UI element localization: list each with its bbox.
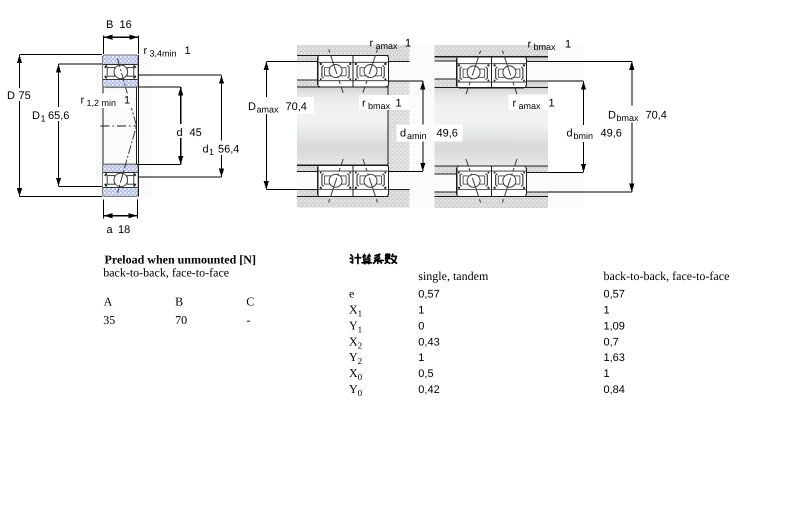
svg-text:70,4: 70,4 xyxy=(286,101,307,113)
svg-text:X0: X0 xyxy=(349,366,363,382)
svg-text:65,6: 65,6 xyxy=(48,110,69,122)
svg-text:D: D xyxy=(7,90,15,102)
svg-text:Preload when unmounted [N]: Preload when unmounted [N] xyxy=(105,253,256,267)
svg-text:18: 18 xyxy=(118,224,130,236)
svg-text:B: B xyxy=(175,295,183,309)
svg-text:1: 1 xyxy=(565,39,571,51)
svg-text:D: D xyxy=(608,110,616,122)
svg-text:a: a xyxy=(107,224,114,236)
svg-text:r: r xyxy=(144,45,148,57)
svg-text:r: r xyxy=(81,95,85,107)
svg-text:A: A xyxy=(104,295,113,309)
svg-text:3,4min: 3,4min xyxy=(150,49,177,59)
svg-text:1: 1 xyxy=(209,147,214,157)
svg-text:bmin: bmin xyxy=(574,131,594,141)
svg-text:70,4: 70,4 xyxy=(646,110,667,122)
svg-text:amax: amax xyxy=(376,41,399,51)
svg-text:1,09: 1,09 xyxy=(604,320,625,332)
svg-text:1: 1 xyxy=(185,45,191,57)
svg-text:e: e xyxy=(349,287,354,301)
svg-text:Y1: Y1 xyxy=(349,318,362,334)
svg-text:amax: amax xyxy=(257,105,280,115)
svg-text:back-to-back, face-to-face: back-to-back, face-to-face xyxy=(604,269,730,283)
svg-text:1: 1 xyxy=(418,352,424,364)
svg-text:d: d xyxy=(203,144,209,156)
svg-text:56,4: 56,4 xyxy=(218,144,239,156)
svg-text:1: 1 xyxy=(405,38,411,50)
svg-text:0,42: 0,42 xyxy=(418,384,439,396)
svg-text:d: d xyxy=(177,127,183,139)
svg-text:0,5: 0,5 xyxy=(418,368,433,380)
svg-text:0,84: 0,84 xyxy=(604,384,625,396)
svg-text:d: d xyxy=(567,128,573,140)
svg-text:0: 0 xyxy=(418,320,424,332)
svg-text:amax: amax xyxy=(519,101,542,111)
svg-text:1: 1 xyxy=(396,98,402,110)
svg-text:bmax: bmax xyxy=(534,42,557,52)
svg-text:49,6: 49,6 xyxy=(437,128,458,140)
svg-text:bmax: bmax xyxy=(368,101,391,111)
svg-text:X1: X1 xyxy=(349,303,362,319)
svg-text:d: d xyxy=(400,128,406,140)
svg-text:-: - xyxy=(247,313,251,327)
svg-text:49,6: 49,6 xyxy=(601,128,622,140)
svg-text:D: D xyxy=(248,101,256,113)
svg-text:Y0: Y0 xyxy=(349,382,363,398)
svg-text:1: 1 xyxy=(604,368,610,380)
svg-text:0,57: 0,57 xyxy=(418,289,439,301)
svg-text:back-to-back, face-to-face: back-to-back, face-to-face xyxy=(103,266,229,280)
svg-text:single, tandem: single, tandem xyxy=(418,269,489,283)
svg-text:0,7: 0,7 xyxy=(604,336,619,348)
svg-text:1,63: 1,63 xyxy=(604,352,625,364)
svg-text:35: 35 xyxy=(103,313,115,327)
svg-text:45: 45 xyxy=(190,127,202,139)
svg-text:75: 75 xyxy=(19,90,31,102)
svg-text:1: 1 xyxy=(41,114,46,124)
svg-text:1: 1 xyxy=(124,95,130,107)
svg-text:D: D xyxy=(32,110,40,122)
svg-text:r: r xyxy=(362,98,366,110)
svg-text:1: 1 xyxy=(549,98,555,110)
svg-text:r: r xyxy=(528,39,532,51)
svg-text:1: 1 xyxy=(604,305,610,317)
svg-text:X2: X2 xyxy=(349,334,362,350)
svg-text:0,57: 0,57 xyxy=(604,289,625,301)
svg-text:r: r xyxy=(513,98,517,110)
svg-text:1: 1 xyxy=(418,305,424,317)
svg-text:16: 16 xyxy=(120,19,132,31)
svg-text:70: 70 xyxy=(175,313,187,327)
svg-text:Y2: Y2 xyxy=(349,350,362,366)
svg-text:amin: amin xyxy=(407,131,427,141)
svg-text:bmax: bmax xyxy=(617,113,640,123)
svg-text:1,2 min: 1,2 min xyxy=(87,98,117,108)
svg-text:0,43: 0,43 xyxy=(418,336,439,348)
svg-text:B: B xyxy=(106,19,113,31)
svg-text:C: C xyxy=(246,295,254,309)
svg-text:r: r xyxy=(370,38,374,50)
